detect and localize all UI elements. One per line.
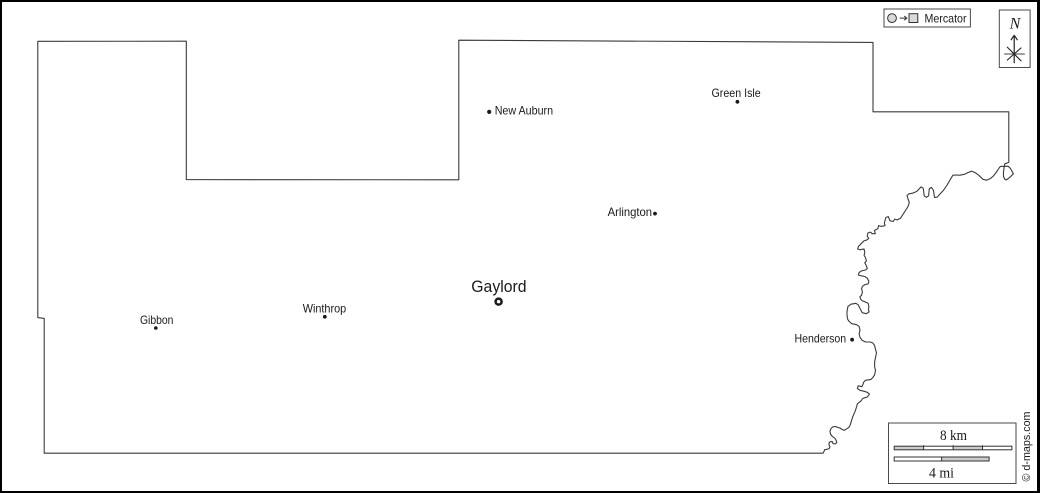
svg-text:Arlington: Arlington — [608, 205, 653, 219]
svg-text:© d-maps.com: © d-maps.com — [1021, 412, 1033, 482]
svg-text:Mercator: Mercator — [925, 11, 967, 25]
svg-text:Gibbon: Gibbon — [140, 313, 173, 327]
svg-text:Gaylord: Gaylord — [471, 277, 526, 296]
svg-text:N: N — [1009, 15, 1022, 32]
svg-text:8 km: 8 km — [940, 428, 967, 444]
svg-text:Winthrop: Winthrop — [303, 302, 347, 316]
svg-text:New Auburn: New Auburn — [495, 104, 553, 118]
svg-text:Henderson: Henderson — [795, 332, 847, 346]
svg-text:4 mi: 4 mi — [929, 466, 954, 482]
svg-text:Green Isle: Green Isle — [712, 86, 761, 100]
